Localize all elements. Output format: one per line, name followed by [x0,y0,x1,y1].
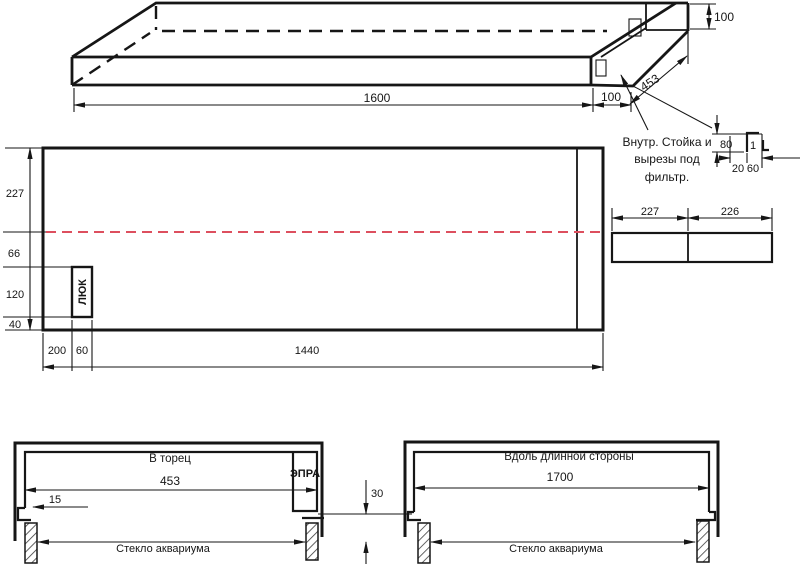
section-long-glass-label: Стекло аквариума [509,543,604,555]
panel-dim-226-label: 226 [721,206,739,218]
front-dim-40-label: 40 [9,319,21,331]
section-long-width-dim-label: 1700 [547,470,574,484]
section-long-title: Вдоль длинной стороны [504,451,634,463]
glass-right [697,521,709,562]
section-end-glass-label: Стекло аквариума [116,543,211,555]
isometric-view: 1600 100 100 453 Внутр. Стойка и вырезы … [72,3,734,184]
front-dim-120-label: 120 [6,289,24,301]
front-dim-1440-label: 1440 [295,345,319,357]
hatch-label: ЛЮК [77,279,89,305]
section-long-view: Вдоль длинной стороны 1700 Стекло аквари… [405,442,718,563]
iso-height-dim-label: 100 [714,10,734,24]
ballast-label: ЭПРА [290,468,320,480]
gap-dimension: 30 [318,480,412,564]
iso-length-dim-label: 1600 [364,91,391,105]
front-dim-66-label: 66 [8,248,20,260]
stand-detail-view: 80 1 20 60 [712,115,800,175]
section-end-width-dim-label: 453 [160,474,180,488]
detail-a-dim-label: 20 [732,163,744,175]
front-dim-227-label: 227 [6,188,24,200]
iso-note-line2: вырезы под [634,152,699,166]
detail-gap-dim-label: 1 [750,140,756,152]
technical-drawing: 1600 100 100 453 Внутр. Стойка и вырезы … [0,0,800,566]
filter-cutout-front [596,60,606,76]
panel-dim-227-label: 227 [641,206,659,218]
section-end-view: В торец 453 15 ЭПРА Стекло аквариума [15,443,324,563]
glass-left [418,523,430,563]
iso-end-offset-dim-label: 100 [601,90,621,104]
front-dim-200-label: 200 [48,345,66,357]
glass-left [25,523,37,563]
section-end-lip-dim-label: 15 [49,494,61,506]
section-end-title: В торец [149,453,191,465]
side-panel-view: 227 226 [612,206,772,262]
front-view: ЛЮК 227 66 120 40 200 60 1440 [3,148,603,371]
front-dim-60-label: 60 [76,345,88,357]
gap-dim-label: 30 [371,488,383,500]
drawing-canvas: 1600 100 100 453 Внутр. Стойка и вырезы … [0,0,800,566]
glass-right [306,523,318,560]
detail-b-dim-label: 60 [747,163,759,175]
iso-note-line1: Внутр. Стойка и [622,135,711,149]
iso-note-line3: фильтр. [645,170,689,184]
